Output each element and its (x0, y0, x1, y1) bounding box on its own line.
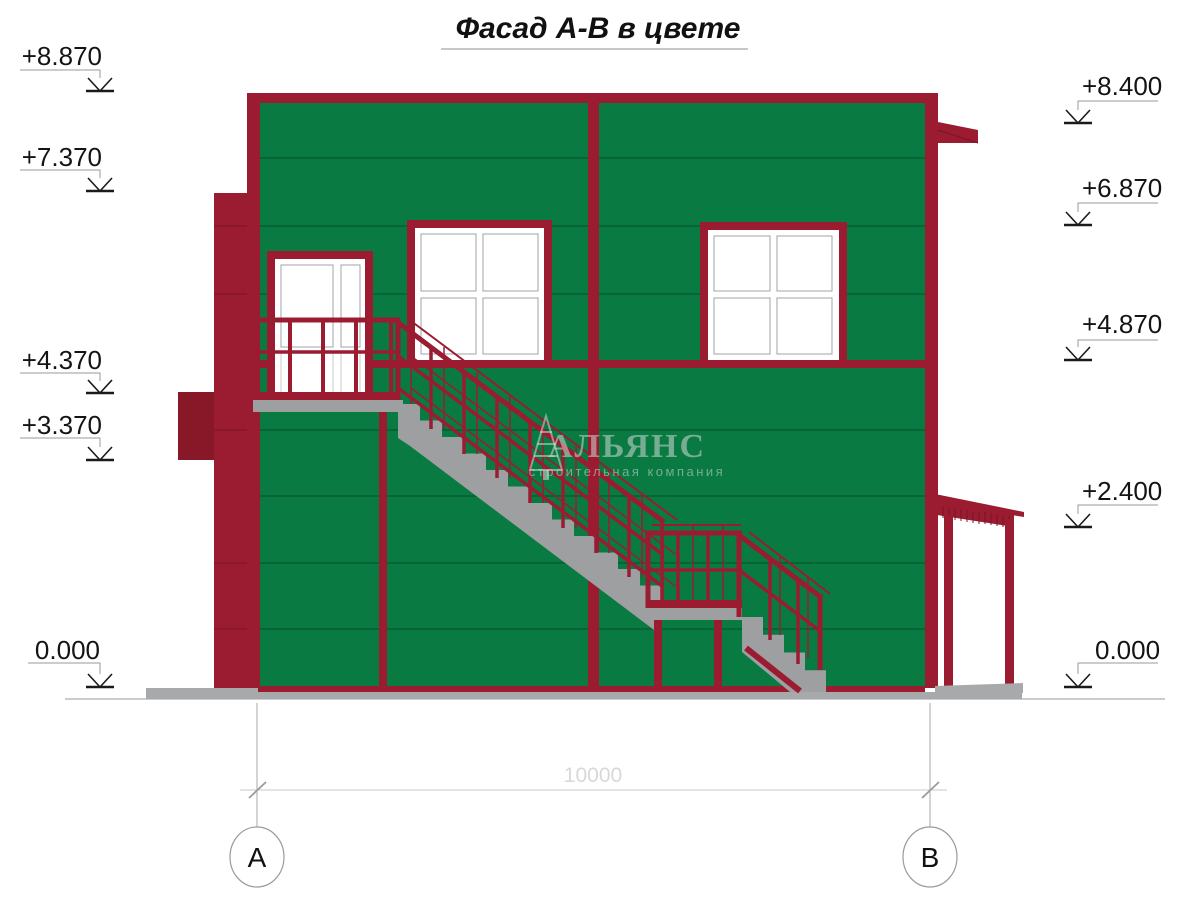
axis-label-a: А (248, 842, 267, 873)
middle-vertical-band (588, 103, 599, 688)
landing-post-right (714, 620, 722, 692)
level-marker: 0.000 (28, 635, 114, 687)
drawing-title: Фасад А-В в цвете (441, 12, 748, 49)
elevation-markers-right: +8.400 +6.870 +4.870 +2.400 0.000 (1064, 71, 1162, 687)
elevation-markers-left: +8.870 +7.370 +4.370 +3.370 0.000 (20, 41, 114, 687)
roof-beam (938, 122, 978, 143)
level-marker: +3.370 (20, 410, 114, 460)
dimension-value: 10000 (564, 764, 622, 787)
level-marker: +4.870 (1064, 309, 1162, 360)
axis-label-b: В (921, 842, 940, 873)
level-marker: +6.870 (1064, 173, 1162, 225)
dimension-string: 10000 А В (230, 703, 957, 887)
window-sash (708, 230, 839, 360)
landing-post-left (654, 620, 662, 692)
watermark-tagline: строительная компания (529, 464, 725, 479)
window-sash (415, 228, 544, 360)
level-value: 0.000 (35, 635, 100, 665)
level-marker: +2.400 (1064, 476, 1162, 527)
window-right (700, 222, 847, 368)
landing-fascia (253, 392, 400, 400)
entrance-canopy (935, 494, 1024, 697)
level-marker: +4.370 (20, 345, 114, 393)
level-marker: +7.370 (20, 142, 114, 191)
canopy-post-right (1005, 519, 1014, 688)
level-value: +4.370 (22, 345, 102, 375)
canopy-post-left (944, 515, 953, 688)
landing-slab (648, 608, 742, 620)
page-title: Фасад А-В в цвете (456, 12, 741, 45)
level-value: +8.400 (1082, 71, 1162, 101)
landing-slab (253, 400, 403, 412)
facade-elevation-svg: Фасад А-В в цвете (0, 0, 1200, 900)
level-marker: +8.870 (20, 41, 114, 91)
watermark-name: АЛЬЯНС (548, 428, 706, 465)
landing-support-post (379, 412, 387, 688)
right-edge-strip (925, 103, 938, 688)
level-value: +3.370 (22, 410, 102, 440)
level-value: +4.870 (1082, 309, 1162, 339)
level-value: +2.400 (1082, 476, 1162, 506)
level-value: 0.000 (1095, 635, 1160, 665)
pilaster-block (178, 392, 214, 460)
parapet-band (247, 93, 938, 103)
elevation-drawing-sheet: Фасад А-В в цвете (0, 0, 1200, 900)
level-value: +7.370 (22, 142, 102, 172)
level-marker: +8.400 (1064, 71, 1162, 123)
level-value: +6.870 (1082, 173, 1162, 203)
level-marker: 0.000 (1064, 635, 1160, 687)
axis-bubble-b: В (903, 827, 957, 887)
axis-bubble-a: А (230, 827, 284, 887)
level-value: +8.870 (22, 41, 102, 71)
